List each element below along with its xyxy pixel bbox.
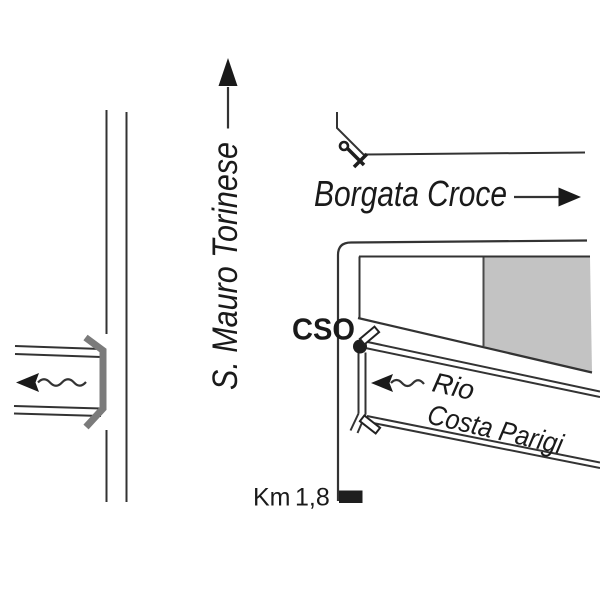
left-road xyxy=(107,110,127,502)
river-label-line2: Costa Parigi xyxy=(425,399,567,460)
left-canal xyxy=(14,338,103,428)
left-canal-north-bank-line2 xyxy=(15,354,101,357)
river-flow-arrow-icon xyxy=(371,374,393,392)
left-canal-south-bank-line1 xyxy=(14,406,101,409)
east-arrow-icon xyxy=(559,188,582,207)
km-marker-label: Km xyxy=(253,484,291,512)
district-borgata: Borgata Croce xyxy=(314,173,581,214)
gated-lane xyxy=(337,112,585,167)
left-canal-south-bank-line2 xyxy=(14,414,101,417)
river-flow-wavy-line xyxy=(391,380,424,386)
street-smauro-label: S. Mauro Torinese xyxy=(206,142,245,390)
venue-cso-label: CSO xyxy=(292,312,355,347)
gate-pivot-icon xyxy=(340,142,348,150)
km-marker-value: 1,8 xyxy=(295,484,330,512)
city-block xyxy=(358,257,592,373)
left-flow-wavy-line xyxy=(38,379,86,386)
river-branch-bend-line1 xyxy=(351,414,359,431)
district-borgata-label: Borgata Croce xyxy=(314,173,507,214)
city-block-gray-area xyxy=(483,258,592,373)
km-marker: Km 1,8 xyxy=(253,484,363,512)
sketch-map: S. Mauro Torinese Borgata Croce xyxy=(0,0,600,600)
left-flow-arrow-icon xyxy=(16,373,39,392)
north-arrow-icon xyxy=(219,58,238,86)
venue-cso: CSO xyxy=(292,312,380,434)
weir-barrier-bracket xyxy=(86,338,104,428)
km-marker-block xyxy=(339,491,363,504)
gated-lane-line xyxy=(337,112,585,155)
street-smauro: S. Mauro Torinese xyxy=(206,58,245,390)
left-canal-north-bank-line1 xyxy=(15,346,101,349)
